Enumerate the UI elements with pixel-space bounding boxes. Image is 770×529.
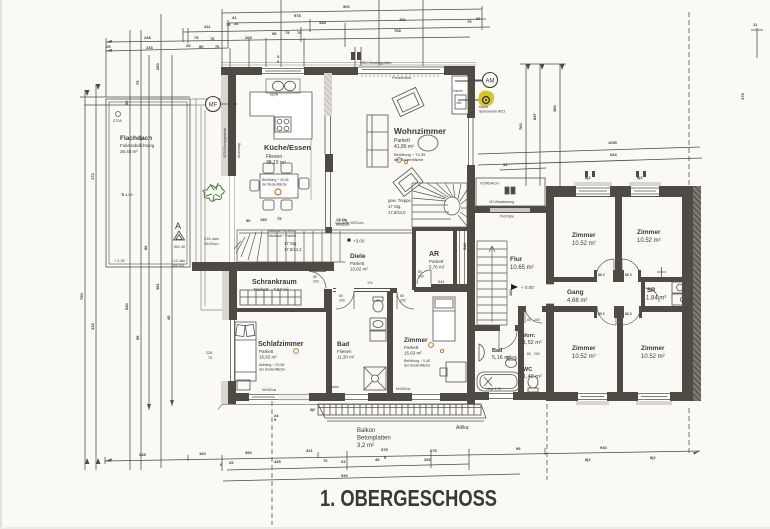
svg-text:Liege 1,75: Liege 1,75	[486, 387, 501, 391]
svg-text:175: 175	[740, 93, 745, 100]
svg-text:Mrt.B/Dus: Mrt.B/Dus	[396, 387, 411, 391]
svg-text:448: 448	[319, 20, 326, 25]
svg-text:80 2: 80 2	[625, 273, 632, 277]
svg-text:Flachdach: Flachdach	[120, 135, 152, 142]
svg-text:63: 63	[341, 459, 346, 464]
svg-text:HSC-Wurtingplatte: HSC-Wurtingplatte	[360, 61, 392, 65]
svg-text:160: 160	[199, 451, 206, 456]
svg-text:Mrt.B/Dus: Mrt.B/Dus	[262, 388, 277, 392]
svg-text:90/21cm: 90/21cm	[336, 223, 349, 227]
svg-text:75: 75	[285, 30, 290, 35]
svg-text:406: 406	[399, 17, 406, 22]
svg-text:Abhäng ÷ 20,06: Abhäng ÷ 20,06	[259, 363, 284, 367]
svg-text:90: 90	[246, 218, 251, 223]
svg-text:4.68 m²: 4.68 m²	[567, 298, 587, 304]
svg-text:Parkett: Parkett	[404, 345, 419, 350]
svg-text:75: 75	[194, 35, 199, 40]
svg-text:Kante: Kante	[479, 105, 488, 109]
svg-text:930: 930	[341, 473, 348, 478]
svg-text:80: 80	[339, 294, 343, 298]
svg-text:200: 200	[339, 299, 345, 303]
svg-text:219-Jabr: 219-Jabr	[204, 237, 220, 241]
svg-text:20/20cm: 20/20cm	[204, 242, 219, 246]
svg-text:80 2: 80 2	[625, 312, 632, 316]
svg-text:39: 39	[503, 162, 508, 167]
svg-text:Parkett: Parkett	[429, 259, 444, 264]
svg-text:Betonplatten: Betonplatten	[357, 436, 391, 442]
svg-text:11,30 m²: 11,30 m²	[337, 355, 355, 360]
svg-text:99: 99	[516, 446, 521, 451]
svg-text:10.52 m²: 10.52 m²	[572, 241, 596, 247]
svg-text:847: 847	[532, 113, 537, 120]
svg-text:268: 268	[245, 35, 252, 40]
svg-text:⇅ 4,06: ⇅ 4,06	[121, 193, 133, 197]
svg-text:26: 26	[476, 16, 481, 21]
svg-text:Parkett: Parkett	[259, 349, 274, 354]
svg-text:Zimmer: Zimmer	[641, 345, 665, 352]
svg-text:Belüftung ÷ 0,40: Belüftung ÷ 0,40	[404, 359, 430, 363]
svg-text:80: 80	[418, 270, 422, 274]
svg-text:Dusche: Dusche	[328, 385, 339, 389]
svg-text:380: 380	[552, 105, 557, 112]
svg-text:gew. Treppe: gew. Treppe	[388, 198, 411, 203]
svg-text:der Bodenfläche: der Bodenfläche	[259, 368, 285, 372]
svg-text:Attika: Attika	[456, 425, 469, 431]
svg-text:25: 25	[186, 43, 191, 48]
svg-text:5,76 m²: 5,76 m²	[429, 265, 445, 270]
svg-text:80: 80	[400, 294, 404, 298]
svg-text:200: 200	[534, 352, 540, 356]
svg-text:15,63 m²: 15,63 m²	[404, 351, 422, 356]
svg-text:Wohnzimmer: Wohnzimmer	[394, 126, 447, 136]
svg-text:238: 238	[139, 452, 146, 457]
svg-text:80: 80	[527, 318, 531, 322]
svg-text:540: 540	[124, 303, 129, 310]
svg-text:Geländer H=90cm: Geländer H=90cm	[268, 229, 296, 233]
svg-text:Handlauf ÷ Parkett: Handlauf ÷ Parkett	[268, 234, 296, 238]
svg-text:L12-Jahr: L12-Jahr	[172, 259, 186, 263]
svg-text:A: A	[175, 221, 181, 231]
svg-text:750: 750	[79, 293, 84, 300]
svg-text:Bad: Bad	[337, 341, 349, 348]
svg-text:Zimmer: Zimmer	[404, 337, 428, 344]
svg-text:233: 233	[146, 45, 153, 50]
svg-text:38,10 m²: 38,10 m²	[266, 160, 286, 166]
svg-text:76: 76	[210, 36, 215, 41]
svg-text:Parkett: Parkett	[350, 261, 365, 266]
svg-text:SR: SR	[647, 288, 656, 294]
svg-text:315: 315	[90, 323, 95, 330]
svg-text:80 2: 80 2	[598, 273, 605, 277]
svg-text:1%: 1%	[367, 281, 373, 285]
svg-text:10,82 m²: 10,82 m²	[350, 267, 368, 272]
svg-text:Belüftung ÷ 30,06: Belüftung ÷ 30,06	[262, 178, 289, 182]
svg-text:411: 411	[204, 24, 211, 29]
svg-text:Küche/Essen: Küche/Essen	[264, 143, 311, 152]
svg-text:98: 98	[272, 31, 277, 36]
svg-text:+ 0.00: + 0.00	[521, 285, 534, 290]
svg-text:544: 544	[438, 280, 444, 284]
svg-text:45: 45	[166, 315, 171, 320]
svg-text:321: 321	[306, 448, 313, 453]
svg-text:17,8/24,0: 17,8/24,0	[388, 210, 406, 215]
svg-text:8|2: 8|2	[650, 455, 656, 460]
svg-text:26: 26	[234, 21, 239, 26]
svg-text:Fenstertüre: Fenstertüre	[392, 76, 411, 80]
svg-text:80 2: 80 2	[598, 312, 605, 316]
svg-text:17,8/24,2: 17,8/24,2	[284, 247, 302, 252]
svg-text:3,2 m²: 3,2 m²	[357, 443, 374, 449]
svg-text:644: 644	[610, 152, 617, 157]
svg-text:41: 41	[232, 15, 237, 20]
svg-text:Prefl.Stoe: Prefl.Stoe	[500, 215, 514, 219]
svg-text:190: 190	[260, 217, 267, 222]
svg-text:768: 768	[394, 28, 401, 33]
svg-text:248: 248	[144, 35, 151, 40]
svg-text:17 Stg.: 17 Stg.	[388, 204, 401, 209]
svg-text:544: 544	[462, 243, 467, 250]
svg-text:der Bodenfläche: der Bodenfläche	[262, 183, 287, 187]
svg-text:VD5-Rinnegebinde: VD5-Rinnegebinde	[223, 128, 227, 158]
svg-text:200: 200	[534, 318, 540, 322]
svg-text:8|2: 8|2	[585, 175, 591, 180]
svg-text:10.52 m²: 10.52 m²	[572, 354, 596, 360]
svg-text:75: 75	[226, 22, 231, 27]
svg-text:+3.00: +3.00	[353, 239, 365, 244]
svg-text:352: 352	[245, 450, 252, 455]
svg-text:80: 80	[313, 275, 317, 279]
svg-text:Parkett 7,67 m²: Parkett 7,67 m²	[254, 287, 289, 292]
svg-text:86: 86	[143, 245, 148, 250]
svg-text:160-202: 160-202	[172, 264, 185, 268]
svg-text:Diele: Diele	[350, 253, 366, 260]
svg-text:76: 76	[323, 458, 328, 463]
svg-text:601 40: 601 40	[174, 245, 185, 249]
svg-text:76: 76	[297, 30, 302, 35]
svg-text:Fliesen: Fliesen	[337, 349, 352, 354]
svg-text:200: 200	[313, 280, 319, 284]
svg-text:STOA: STOA	[113, 119, 122, 123]
svg-text:1.84 m²: 1.84 m²	[646, 296, 666, 302]
svg-text:381: 381	[155, 283, 160, 290]
svg-text:Zimmer: Zimmer	[572, 345, 596, 352]
svg-text:Folienabdichtung: Folienabdichtung	[120, 143, 155, 148]
svg-text:Spüle: Spüle	[270, 93, 279, 97]
svg-text:70: 70	[208, 356, 212, 360]
svg-text:98: 98	[135, 335, 140, 340]
svg-text:760: 760	[518, 123, 523, 130]
svg-text:940: 940	[600, 445, 607, 450]
svg-text:Zimmer: Zimmer	[637, 229, 661, 236]
svg-text:175: 175	[430, 448, 437, 453]
svg-text:75: 75	[467, 19, 472, 24]
svg-text:der Bodenfläche: der Bodenfläche	[404, 364, 430, 368]
svg-text:VORDACH: VORDACH	[480, 182, 499, 186]
svg-text:10.52 m²: 10.52 m²	[637, 238, 661, 244]
svg-text:435: 435	[274, 459, 281, 464]
svg-text:WC: WC	[523, 367, 532, 373]
svg-text:Bad: Bad	[492, 348, 502, 354]
svg-text:Zimmer: Zimmer	[572, 232, 596, 239]
svg-text:Schlafzimmer: Schlafzimmer	[258, 341, 304, 348]
svg-text:MF: MF	[209, 103, 218, 109]
svg-text:45: 45	[375, 457, 380, 462]
svg-text:180: 180	[508, 289, 513, 296]
svg-text:260: 260	[155, 63, 160, 70]
svg-text:978: 978	[294, 13, 301, 18]
svg-text:200: 200	[418, 275, 424, 279]
svg-text:1,40 m²: 1,40 m²	[523, 374, 542, 380]
svg-text:16,82 m²: 16,82 m²	[259, 355, 277, 360]
svg-text:90: 90	[124, 100, 129, 105]
svg-text:VD-Beplankung: VD-Beplankung	[489, 200, 514, 204]
svg-text:1,52 m²: 1,52 m²	[523, 340, 542, 346]
svg-text:Balkon: Balkon	[357, 428, 375, 434]
svg-text:75: 75	[135, 80, 140, 85]
svg-text:902: 902	[343, 4, 350, 9]
svg-text:5,16 m²: 5,16 m²	[492, 355, 511, 361]
svg-text:Speisekam.W23: Speisekam.W23	[479, 110, 505, 114]
svg-text:Vorr.: Vorr.	[523, 333, 536, 339]
svg-text:80: 80	[199, 44, 204, 49]
svg-text:Abl.: Abl.	[457, 101, 463, 105]
svg-text:26,48 m²: 26,48 m²	[120, 149, 138, 154]
svg-text:AM: AM	[486, 79, 495, 85]
svg-text:17 Stg.: 17 Stg.	[284, 241, 297, 246]
svg-text:75: 75	[277, 216, 282, 221]
svg-text:8|2: 8|2	[637, 175, 643, 180]
svg-text:Schrankraum: Schrankraum	[252, 279, 297, 286]
svg-text:10.52 m²: 10.52 m²	[641, 354, 665, 360]
svg-text:76: 76	[215, 44, 220, 49]
svg-text:AR: AR	[429, 251, 439, 258]
svg-text:1. OBERGESCHOSS: 1. OBERGESCHOSS	[320, 485, 497, 511]
svg-text:1090: 1090	[608, 140, 618, 145]
svg-text:375: 375	[381, 447, 388, 452]
svg-text:25: 25	[106, 44, 111, 49]
svg-text:10.65 m²: 10.65 m²	[510, 265, 534, 271]
svg-text:der Bodenfläche: der Bodenfläche	[394, 157, 424, 162]
svg-text:80: 80	[527, 352, 531, 356]
svg-text:228: 228	[206, 351, 212, 355]
svg-text:Flur: Flur	[510, 256, 523, 263]
svg-text:8|2: 8|2	[585, 457, 591, 462]
svg-text:41,80 m²: 41,80 m²	[394, 144, 414, 150]
svg-text:+ 2,39: + 2,39	[114, 259, 125, 263]
svg-text:200: 200	[400, 299, 406, 303]
svg-text:Kamin: Kamin	[453, 89, 463, 93]
svg-text:8|0: 8|0	[310, 408, 315, 412]
svg-text:25: 25	[229, 460, 234, 465]
svg-text:173: 173	[90, 173, 95, 180]
svg-text:Anschlag: Anschlag	[237, 143, 241, 158]
svg-text:Gang: Gang	[567, 289, 584, 296]
svg-text:1/8 Stg: 1/8 Stg	[336, 218, 347, 222]
svg-text:292: 292	[424, 457, 431, 462]
